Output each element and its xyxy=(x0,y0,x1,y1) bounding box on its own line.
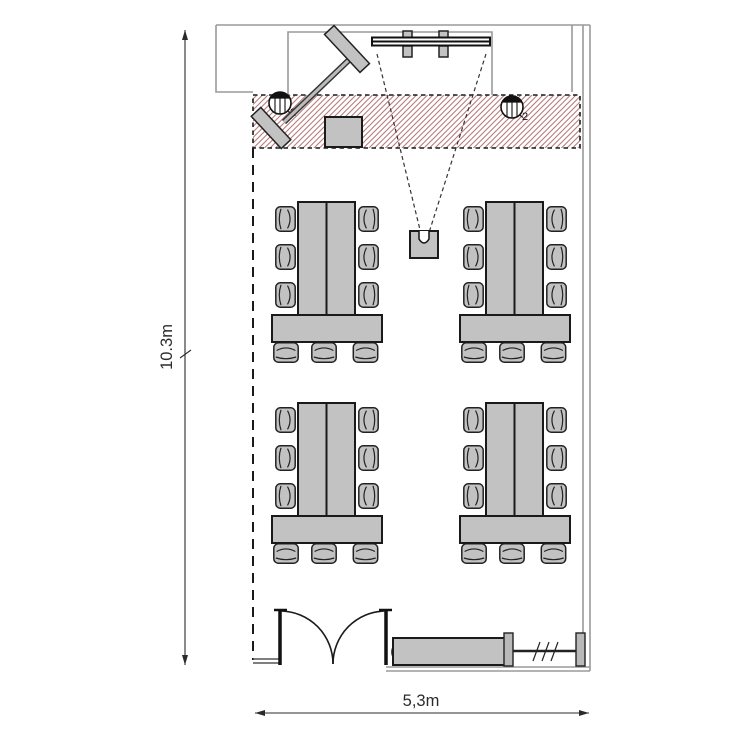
ceiling-light-icon xyxy=(501,96,523,118)
floor-plan: 10.3m 5,3m 2 2 2 xyxy=(0,0,750,750)
table-group-top-left xyxy=(272,202,382,362)
radiator-cap xyxy=(576,633,585,666)
table-group-top-right xyxy=(460,202,570,362)
table-group-bottom-right xyxy=(460,403,570,563)
projector xyxy=(410,231,438,258)
width-dimension-label: 5,3m xyxy=(403,692,440,710)
radiator-cap xyxy=(504,633,513,666)
ceiling-light-icon xyxy=(269,92,291,114)
table-group-bottom-left xyxy=(272,403,382,563)
screen-bracket xyxy=(403,46,412,57)
side-table xyxy=(325,117,362,147)
screen-bracket xyxy=(439,46,448,57)
floor-plan-page: 10.3m 5,3m 2 2 2 xyxy=(0,0,750,750)
light-count-label: 2 xyxy=(522,111,528,123)
height-dimension-label: 10.3m xyxy=(158,324,176,370)
